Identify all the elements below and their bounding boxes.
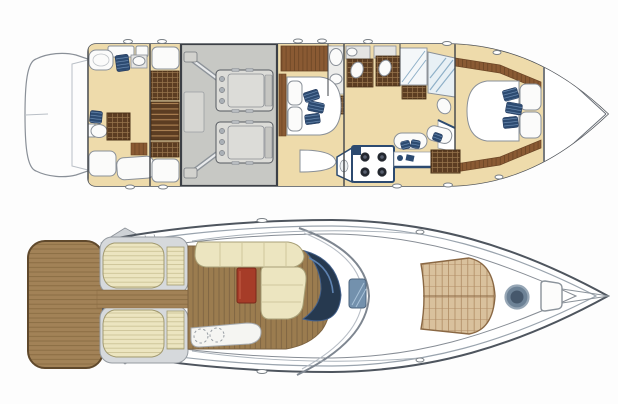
cockpit	[97, 237, 189, 363]
deck-plans-svg	[0, 0, 618, 404]
vip-dresser	[431, 150, 460, 173]
cockpit-bench-sunpad-port	[103, 243, 164, 288]
anchor-locker	[541, 281, 562, 311]
cockpit-walkway	[97, 290, 189, 308]
navy-cushion	[503, 116, 519, 129]
port-engine	[216, 69, 273, 113]
navy-towel	[115, 54, 130, 72]
pillow	[288, 81, 302, 105]
lower-deck-plan	[25, 39, 618, 189]
master-head-toilet	[330, 49, 343, 66]
starboard-engine	[216, 121, 273, 165]
guest-berth	[152, 159, 179, 182]
cockpit-side-step	[167, 311, 184, 349]
cockpit-side-step	[167, 247, 184, 285]
aft-head-toilet	[91, 125, 107, 138]
navy-cushion	[304, 113, 320, 125]
wardrobe	[107, 113, 130, 140]
aft-head-sink	[133, 57, 145, 66]
guest-berth	[152, 47, 179, 69]
bow-void	[543, 44, 618, 186]
cockpit-bench-sunpad-starboard	[103, 310, 164, 357]
yacht-deck-plans-figure	[0, 0, 618, 404]
pillow	[288, 107, 302, 131]
aft-berth	[116, 156, 154, 181]
wood-locker	[151, 71, 179, 100]
master-cabinetry	[281, 46, 331, 71]
pillow	[520, 84, 541, 110]
generator	[184, 92, 204, 132]
teak-swim-platform	[28, 241, 103, 368]
round-deck-hatch-glass	[511, 291, 524, 304]
navy-towel	[89, 110, 102, 123]
aft-berth	[89, 151, 116, 176]
salon-sofa-aft	[195, 242, 304, 267]
salon-sofa-side	[261, 267, 306, 319]
engine-room	[181, 44, 277, 186]
main-deck-plan	[28, 219, 609, 376]
pillow	[520, 112, 541, 138]
companionway-section	[151, 47, 179, 182]
companionway-stairs	[151, 102, 179, 140]
navy-chair	[410, 139, 420, 148]
